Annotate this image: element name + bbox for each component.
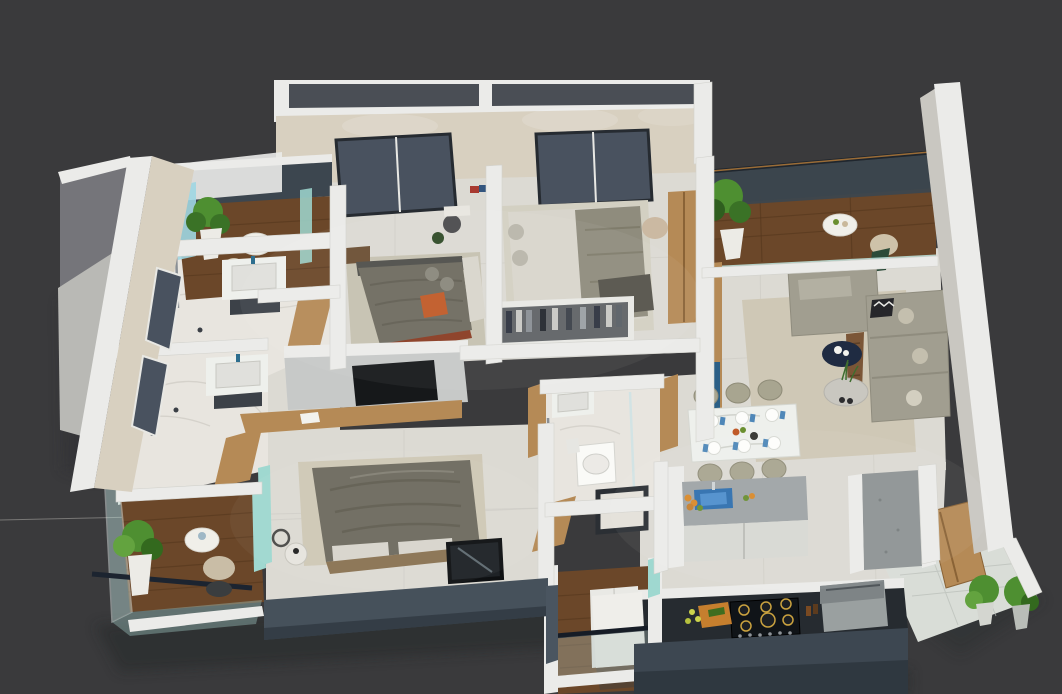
wall-light-scallop	[522, 108, 618, 132]
table-decor	[842, 221, 848, 227]
paper-decor	[300, 412, 320, 424]
faucet	[236, 354, 240, 362]
table-decor	[198, 532, 206, 540]
fixture	[198, 328, 203, 333]
spice-jar	[806, 606, 811, 616]
lemon	[695, 616, 701, 622]
pillow	[898, 308, 914, 324]
sink-basin	[216, 361, 260, 388]
lemon	[685, 618, 691, 624]
decor-object	[847, 398, 853, 404]
chair-base	[206, 581, 232, 597]
basin-inner	[558, 392, 588, 412]
dining-chair	[758, 380, 782, 400]
table-decor	[833, 219, 839, 225]
decor-object	[839, 397, 845, 403]
round-table	[823, 214, 857, 236]
sofa-cushion	[798, 276, 852, 300]
wall	[694, 82, 712, 164]
toilet-tank	[566, 438, 580, 454]
render-canvas: 3 BHK 3D CUT SECTION	[0, 0, 1062, 694]
lemon	[689, 609, 695, 615]
pillow	[912, 348, 928, 364]
flower-decor	[843, 350, 849, 356]
navy-coffee-table	[822, 341, 862, 367]
gray-coffee-table	[824, 378, 868, 406]
accent-chair	[642, 217, 668, 239]
zigzag-pillow	[870, 298, 894, 318]
clerestory-panel-left	[289, 84, 479, 108]
dining-chair	[726, 383, 750, 403]
pillow	[906, 390, 922, 406]
faucet	[251, 256, 255, 264]
fixture	[174, 408, 179, 413]
spice-jar	[813, 604, 818, 614]
toilet-seat	[583, 454, 609, 474]
centerpiece	[740, 427, 746, 433]
books	[470, 186, 479, 193]
flower-decor	[834, 346, 842, 354]
front-wall-strip	[546, 585, 558, 664]
armchair	[203, 556, 235, 580]
floor-plan-scene	[0, 0, 1062, 694]
clerestory-panel-right	[492, 84, 699, 106]
